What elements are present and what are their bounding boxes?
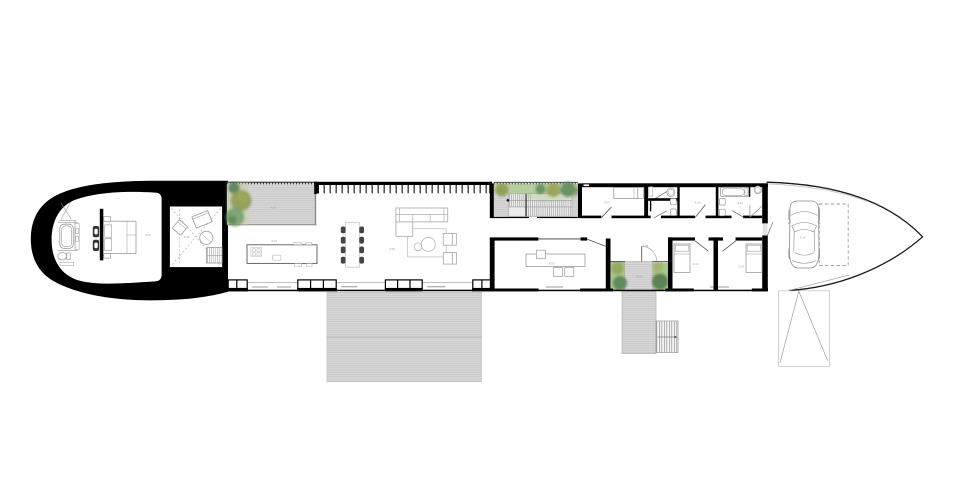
svg-text:3.06: 3.06 <box>389 247 395 251</box>
svg-text:3.11: 3.11 <box>737 201 743 205</box>
svg-text:3.10: 3.10 <box>695 201 701 205</box>
svg-text:3.07: 3.07 <box>604 201 610 205</box>
svg-text:3.01: 3.01 <box>145 233 151 237</box>
svg-text:3.05: 3.05 <box>642 244 648 248</box>
svg-text:4.03: 4.03 <box>270 206 276 210</box>
svg-text:3.16: 3.16 <box>800 236 806 240</box>
svg-text:3.13: 3.13 <box>693 262 699 266</box>
svg-text:3.04: 3.04 <box>271 239 277 243</box>
svg-text:4.04: 4.04 <box>637 275 643 279</box>
svg-text:3.15: 3.15 <box>738 265 744 269</box>
svg-text:3.03: 3.03 <box>549 262 555 266</box>
svg-text:3.02: 3.02 <box>184 235 190 239</box>
